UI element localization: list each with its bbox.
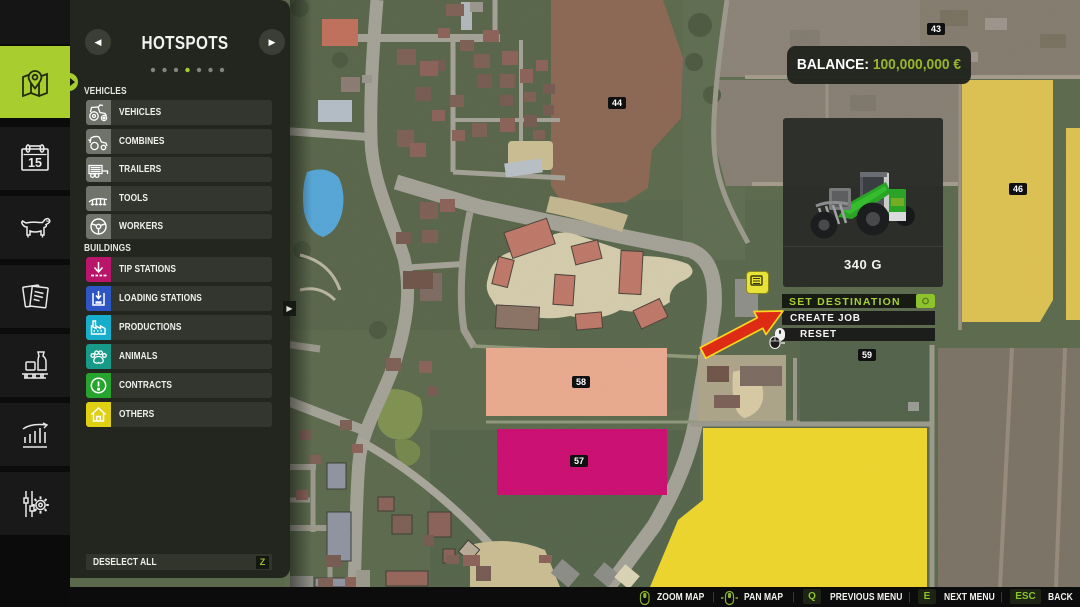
- svg-text:15: 15: [28, 156, 42, 170]
